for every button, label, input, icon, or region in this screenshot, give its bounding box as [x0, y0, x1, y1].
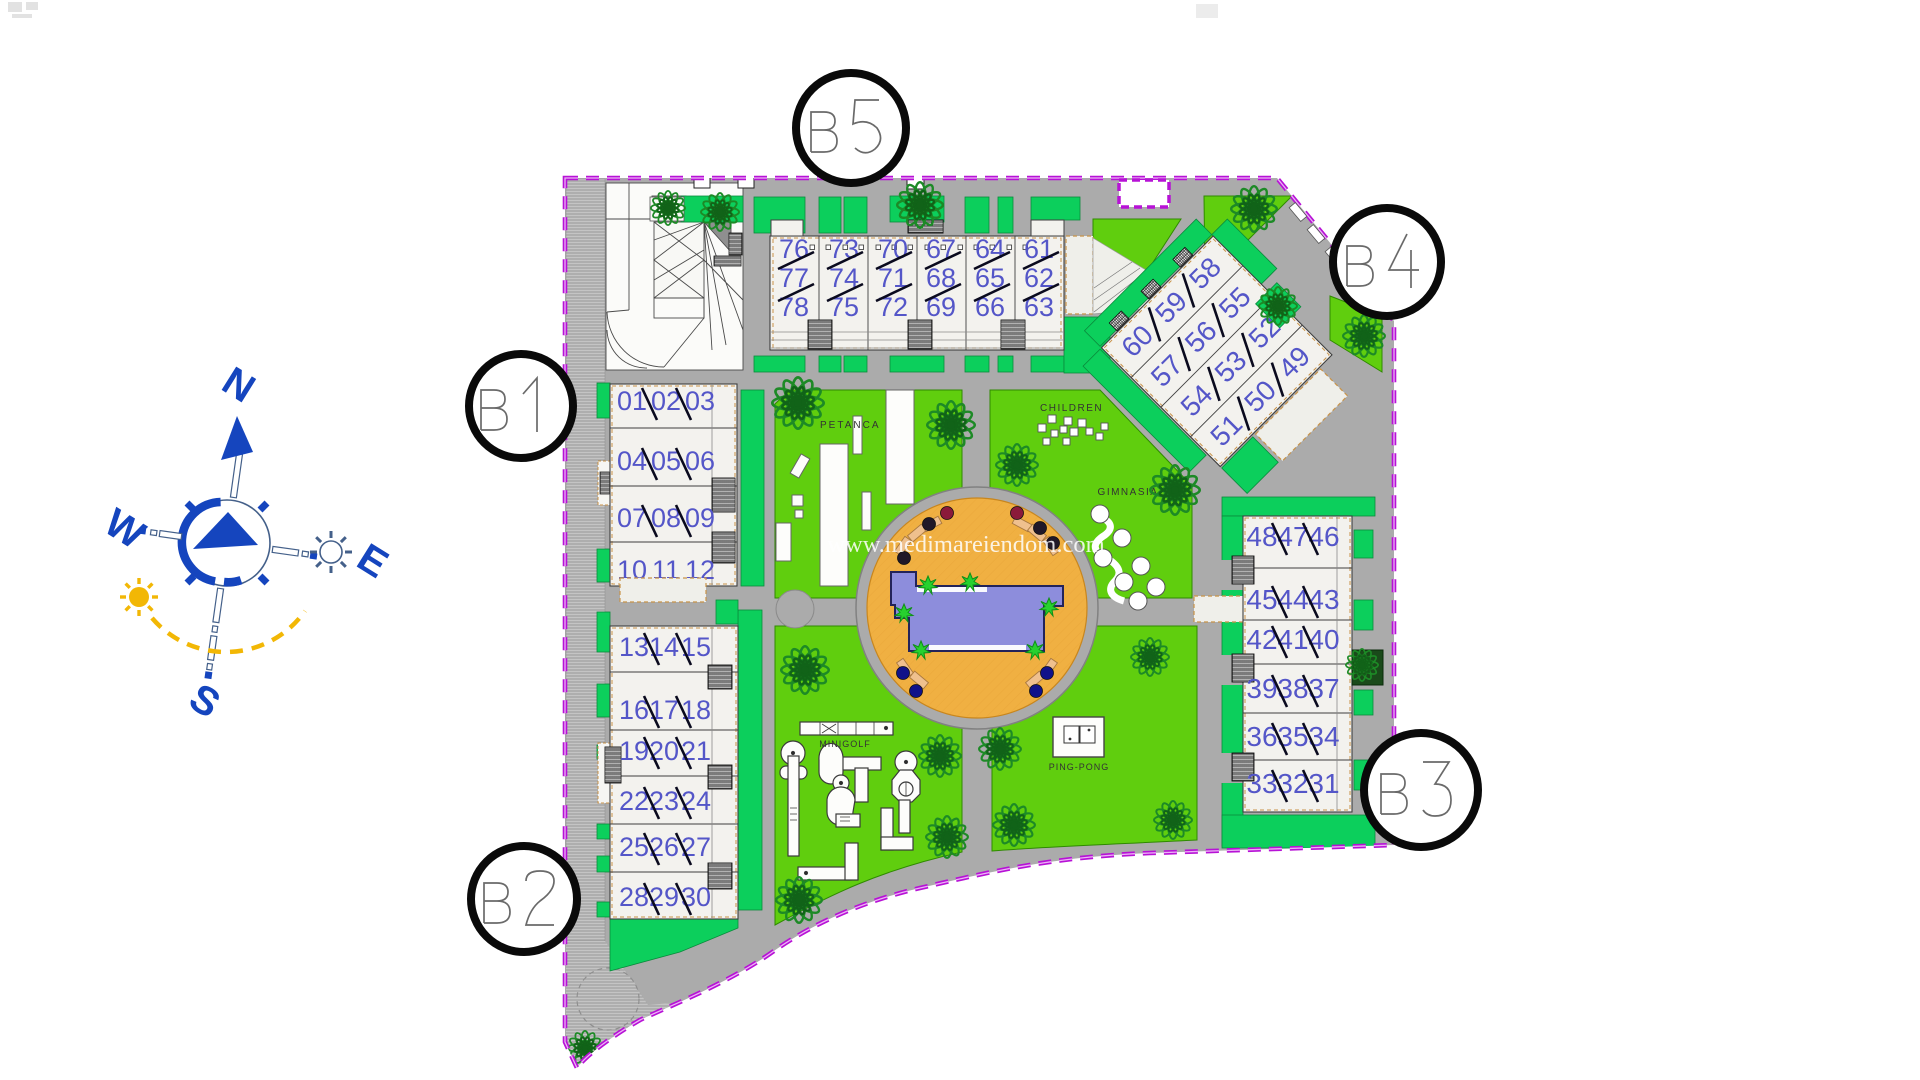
svg-text:21: 21	[681, 736, 711, 766]
svg-text:06: 06	[685, 446, 715, 476]
svg-text:27: 27	[681, 832, 711, 862]
svg-text:15: 15	[681, 632, 711, 662]
svg-text:63: 63	[1024, 292, 1054, 322]
svg-text:26: 26	[649, 832, 679, 862]
svg-text:78: 78	[779, 292, 809, 322]
svg-text:20: 20	[649, 736, 679, 766]
svg-text:24: 24	[681, 786, 711, 816]
svg-text:14: 14	[649, 632, 679, 662]
svg-text:67: 67	[926, 234, 956, 264]
svg-text:PETANCA: PETANCA	[820, 420, 881, 431]
svg-text:70: 70	[878, 234, 908, 264]
svg-text:29: 29	[649, 882, 679, 912]
svg-text:61: 61	[1024, 234, 1054, 264]
svg-text:www.medimareiendom.com: www.medimareiendom.com	[827, 531, 1104, 558]
svg-text:09: 09	[685, 503, 715, 533]
svg-text:72: 72	[878, 292, 908, 322]
svg-text:MINIGOLF: MINIGOLF	[819, 739, 871, 749]
svg-text:76: 76	[779, 234, 809, 264]
svg-text:69: 69	[926, 292, 956, 322]
svg-text:30: 30	[681, 882, 711, 912]
svg-text:CHILDREN: CHILDREN	[1040, 403, 1103, 414]
svg-text:64: 64	[975, 234, 1005, 264]
svg-text:03: 03	[685, 386, 715, 416]
svg-text:PING-PONG: PING-PONG	[1049, 762, 1110, 772]
svg-text:73: 73	[829, 234, 859, 264]
svg-text:18: 18	[681, 695, 711, 725]
svg-text:23: 23	[649, 786, 679, 816]
svg-text:75: 75	[829, 292, 859, 322]
svg-text:66: 66	[975, 292, 1005, 322]
svg-text:17: 17	[649, 695, 679, 725]
